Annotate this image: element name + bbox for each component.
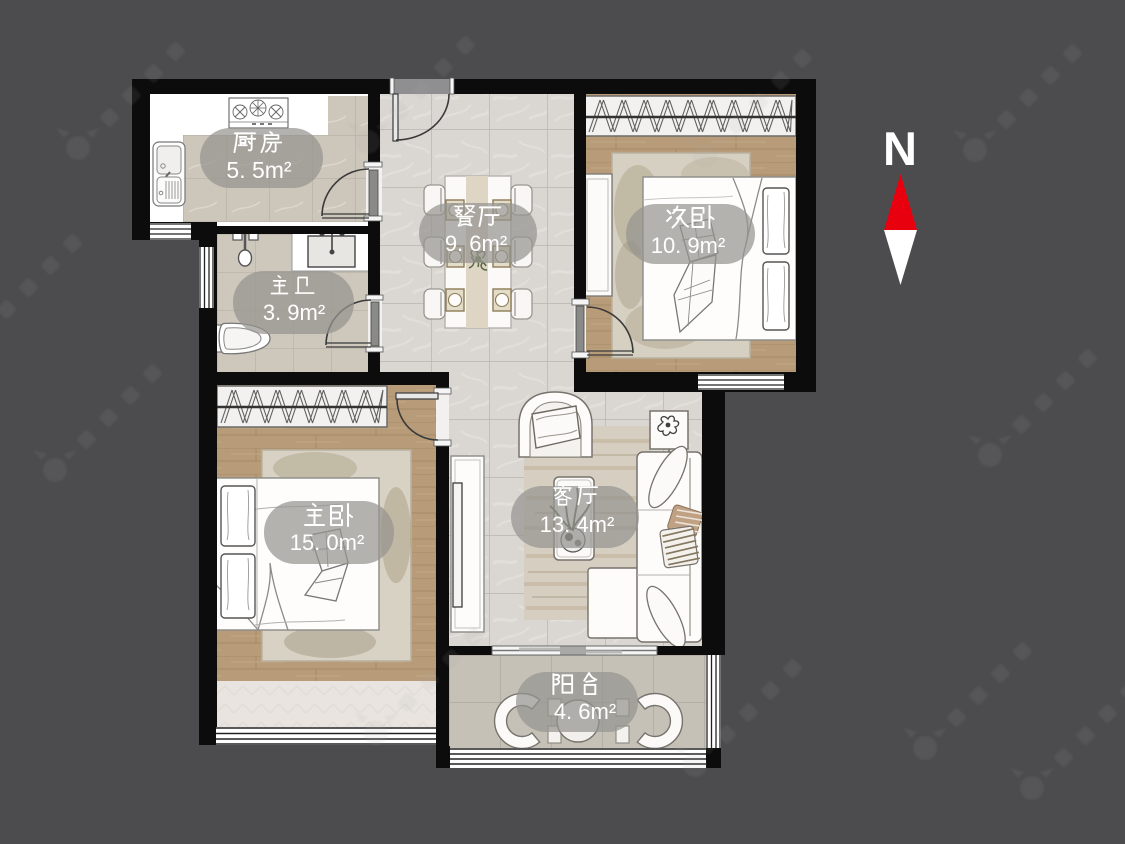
svg-text:9. 6m²: 9. 6m² [445,231,507,256]
svg-text:10. 9m²: 10. 9m² [651,233,726,258]
svg-text:N: N [883,122,917,175]
svg-text:4. 6m²: 4. 6m² [554,699,616,724]
svg-text:13. 4m²: 13. 4m² [540,512,615,537]
svg-text:3. 9m²: 3. 9m² [263,300,325,325]
svg-text:15. 0m²: 15. 0m² [290,530,365,555]
svg-text:5. 5m²: 5. 5m² [226,157,292,183]
